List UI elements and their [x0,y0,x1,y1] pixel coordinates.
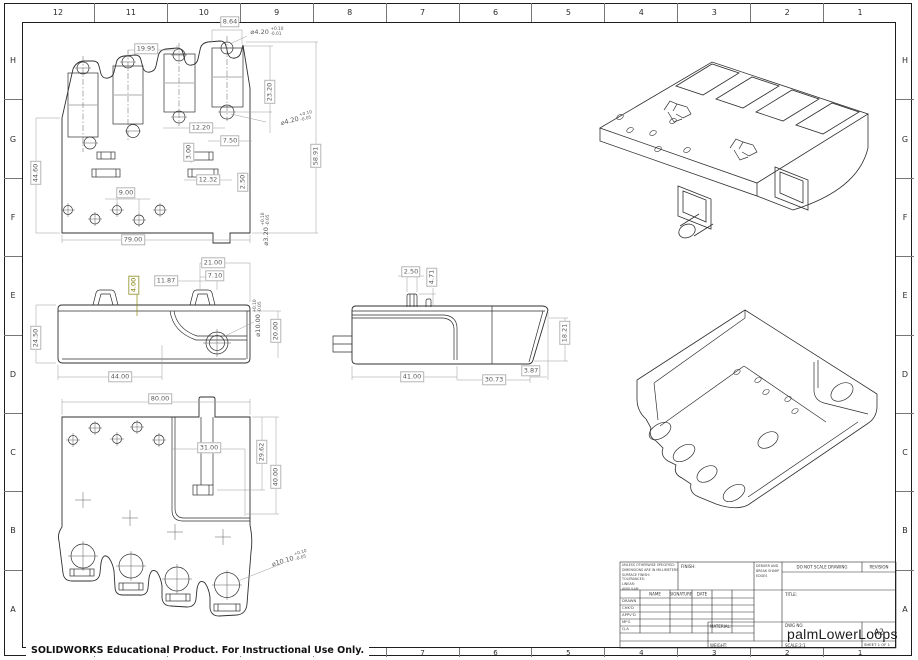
view-isometric-top [600,62,868,240]
dimension-label: 44.60 [30,161,41,185]
dimension-label: 30.73 [482,374,506,385]
dimension-label: 3.87 [521,365,540,376]
dimension-label: 9.00 [116,187,135,198]
deburr-line: EDGES [756,574,781,579]
dim-value: ⌀10.00 [254,314,263,337]
dimension-callout: ⌀4.20 +0.10-0.01 [250,28,283,38]
dimension-label: 19.95 [134,43,158,54]
scale-label: SCALE:2:1 [785,643,806,648]
dimension-label: 40.00 [270,465,281,489]
dimension-label-selected: 4.00 [128,275,139,294]
dimension-label: 12.20 [189,122,213,133]
revision-label: REVISION [869,564,888,569]
dimension-label: 11.87 [154,275,178,286]
title-label: TITLE: [785,592,797,597]
view-bottom [58,397,281,616]
dimension-label: 8.64 [220,16,239,27]
tol-minus: -0.05 [259,299,264,312]
do-not-scale-note: DO NOT SCALE DRAWING [797,564,848,569]
dimension-label: 58.91 [310,144,321,168]
deburr-note: DEBURR ANDBREAK SHARPEDGES [756,564,781,578]
dimension-label: 4.71 [426,267,437,286]
view-rear [36,30,318,243]
name-header: NAME [649,591,661,596]
dimension-label: 7.10 [205,270,224,281]
dimension-label: 41.00 [400,371,424,382]
spec-line: DIMENSIONS ARE IN MILLIMETERS [622,568,677,573]
drawing-sheet: 121110987654321 121110987654321 HGFEDCBA… [0,0,918,660]
finish-label: FINISH: [681,564,696,569]
dimension-label: 2.50 [401,266,420,277]
signature-rows: DRAWNCHK'DAPPV'DMFGQ.A [622,599,636,634]
dimension-callout: ⌀10.00 +0.10-0.05 [254,299,264,336]
dimension-label: 18.21 [559,321,570,345]
dimension-label: 3.00 [183,142,194,161]
deburr-line: BREAK SHARP [756,569,781,574]
drawing-linework [0,0,918,660]
dimension-callout: ⌀3.20 +0.10-0.05 [262,212,272,245]
dimension-label: 12.32 [196,174,220,185]
educational-watermark: SOLIDWORKS Educational Product. For Inst… [26,645,369,656]
signature-row-label: Q.A [622,627,636,634]
dimension-label: 80.00 [148,393,172,404]
weight-label: WEIGHT: [710,643,727,648]
dimension-label: 29.62 [256,440,267,464]
dimension-label: 2.50 [237,172,248,191]
dim-value: ⌀4.20 [250,28,268,37]
paper-size: A2 [874,627,884,636]
dimension-label: 7.50 [220,135,239,146]
tol-minus: -0.05 [267,212,272,225]
dimension-label: 31.00 [197,442,221,453]
dimension-label: 79.00 [121,234,145,245]
dimension-label: 21.00 [201,257,225,268]
dimension-label: 20.00 [270,319,281,343]
signature-header: SIGNATURE [670,591,693,596]
date-header: DATE [697,591,707,596]
tolerance-notes: UNLESS OTHERWISE SPECIFIED:DIMENSIONS AR… [622,563,677,592]
dim-value: ⌀3.20 [262,227,271,245]
dimension-label: 44.00 [108,371,132,382]
sheet-label: SHEET 1 OF 1 [864,643,890,648]
tol-minus: -0.01 [270,33,283,38]
material-label: MATERIAL: [710,624,731,629]
dimension-label: 24.50 [30,326,41,350]
view-isometric-bottom [637,310,877,508]
dimension-label: 23.20 [264,80,275,104]
